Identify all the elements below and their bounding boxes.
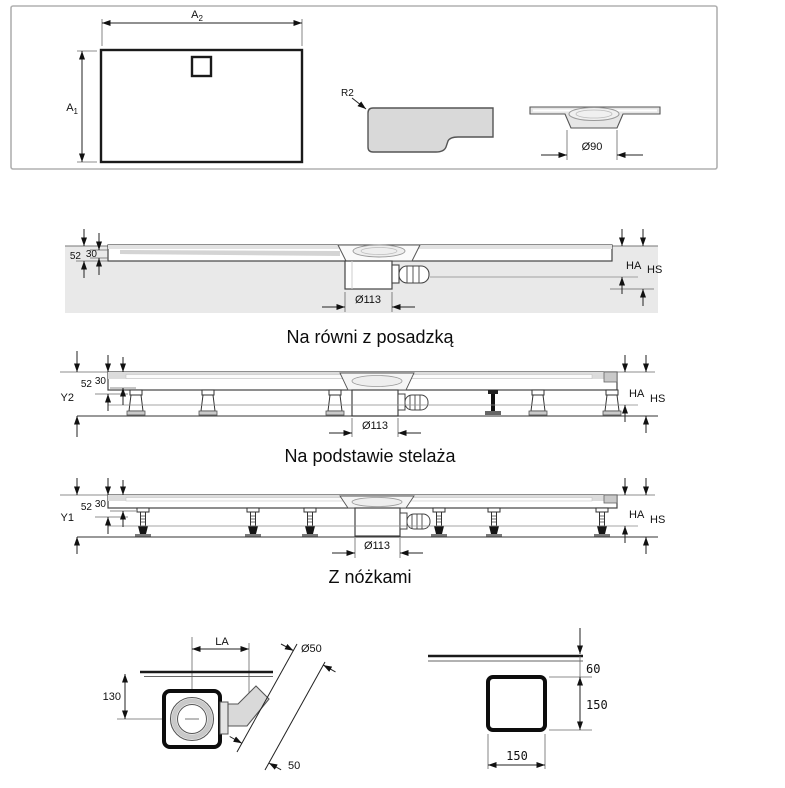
dim-a1-sub: 1 [74,107,79,116]
screw-leg [245,508,261,537]
shower-tray-drawing: A2 A1 R2 Ø90 [0,0,785,788]
dim-label-d113-s3: Ø113 [364,540,390,552]
tray-edge-s2 [604,372,617,382]
dim-label-hs-s2: HS [650,393,665,405]
frame-foot [603,390,621,415]
top-panel: A2 A1 R2 Ø90 [11,6,717,169]
dim-label-150-height: 150 [586,698,608,712]
box-profile [488,677,545,730]
section-title-frame: Na podstawie stelaża [284,446,456,466]
section-title-legs: Z nóżkami [328,567,411,587]
outlet-pipe-s1 [399,266,429,283]
dim-label-d113-s1: Ø113 [355,294,381,306]
dim-label-d90: Ø90 [582,141,603,153]
dim-label-52-s1: 52 [70,251,82,262]
dim-label-y2: Y2 [61,392,74,404]
dim-label-30-s2: 30 [95,376,107,387]
dim-label-ha-s1: HA [626,260,642,272]
dim-label-hs-s1: HS [647,264,662,276]
dim-label-y1: Y1 [61,512,74,524]
screw-leg [486,508,502,537]
dim-label-130: 130 [103,691,121,703]
dim-label-d50: Ø50 [301,643,322,655]
outlet-flange-s2 [398,394,405,410]
outlet-flange-s1 [392,265,399,283]
frame-foot [127,390,145,415]
dim-a2-sub: 2 [198,14,203,23]
dim-label-30-s3: 30 [95,499,107,510]
dim-label-52-s3: 52 [81,502,93,513]
frame-foot [529,390,547,415]
dim-label-50: 50 [288,760,300,772]
technical-drawing-page: A2 A1 R2 Ø90 [0,0,785,788]
section-flush: 52 30 HA HS Ø113 Na równi z posadzką [65,229,662,347]
drain-square-plan [192,57,211,76]
detail-box-section: 60 150 150 [428,628,608,769]
dim-label-ha-s2: HA [629,388,645,400]
frame-rod [485,390,501,415]
dim-label-150-width: 150 [506,749,528,763]
dim-label-ha-s3: HA [629,509,645,521]
outlet-flange-s3 [400,513,407,529]
dim-label-d113-s2: Ø113 [362,420,388,432]
dim-label-hs-s3: HS [650,514,665,526]
screw-leg [302,508,318,537]
dim-label-30-s1: 30 [86,249,98,260]
detail-drain-plan: LA 130 Ø50 50 [103,636,336,772]
trap-body-s3 [355,508,400,536]
dim-label-60: 60 [586,662,600,676]
dim-label-52-s2: 52 [81,379,93,390]
trap-body-s2 [352,390,398,416]
screw-leg [594,508,610,537]
frame-foot [199,390,217,415]
screw-leg [431,508,447,537]
frame-foot [326,390,344,415]
tray-edge-s3 [604,495,617,503]
section-frame: Y2 52 30 HA HS Ø113 Na podstawie stelaża [60,351,665,466]
section-legs: Y1 52 30 HA HS Ø113 Z nóżkami [60,478,665,587]
outlet-pipe-s3 [407,514,430,529]
screw-leg [135,508,151,537]
section-title-flush: Na równi z posadzką [286,327,454,347]
dim-label-la: LA [215,636,229,648]
dim-label-r2: R2 [341,88,354,99]
drain-bowl [569,108,619,121]
elbow-flange [220,702,228,734]
outlet-pipe-s2 [405,395,428,410]
